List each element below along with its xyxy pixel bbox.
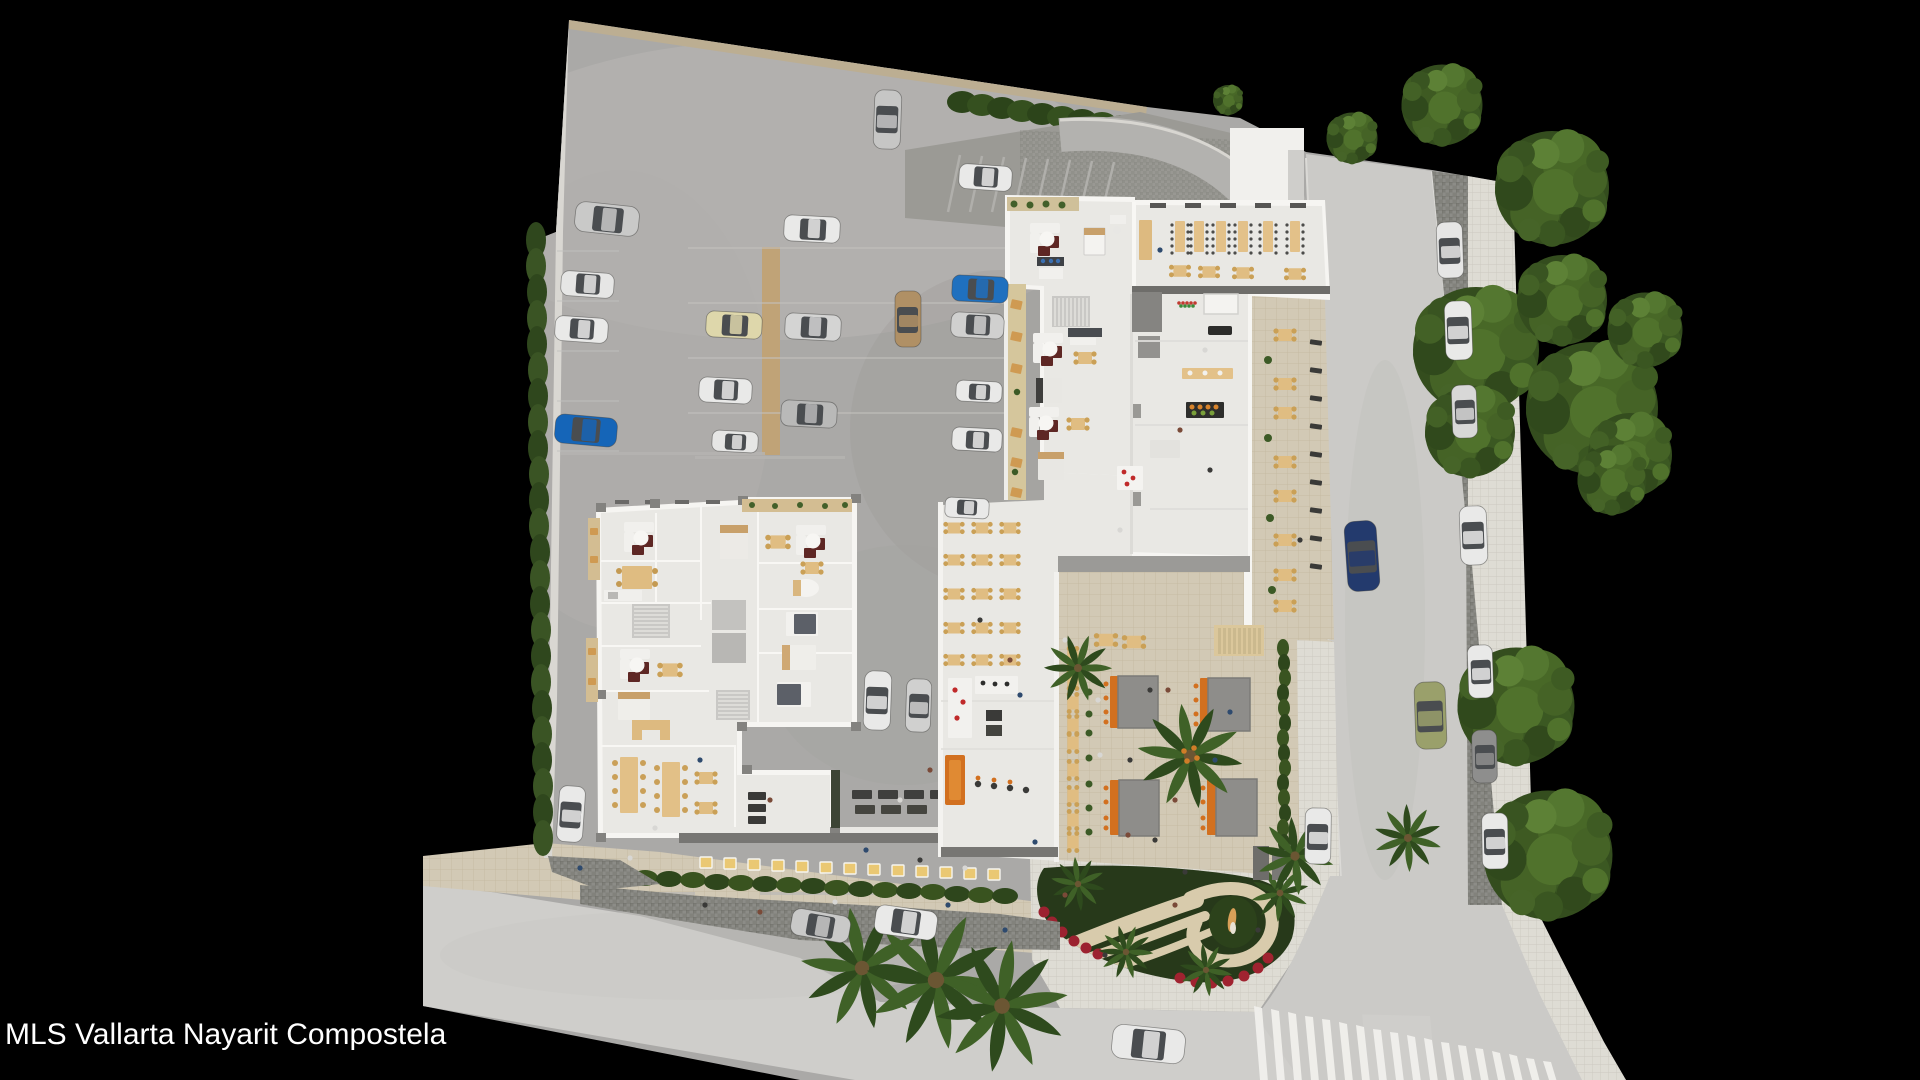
- svg-text:MLS Vallarta Nayarit Compostel: MLS Vallarta Nayarit Compostela: [5, 1018, 447, 1051]
